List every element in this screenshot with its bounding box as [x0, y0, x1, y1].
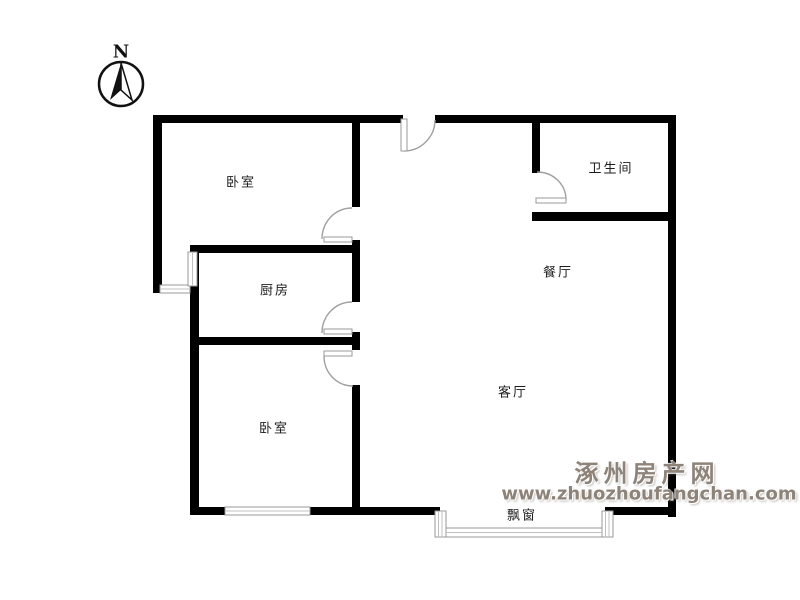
bedroom-bottom-door	[324, 351, 353, 386]
wall-central-4	[352, 385, 360, 515]
room-label-living: 客厅	[498, 382, 528, 401]
floorplan-canvas: N 卧室 卫生间 厨房 餐厅 客厅 卧室 飘窗 涿州房产网 www.zhuozh…	[0, 0, 800, 600]
room-label-dining: 餐厅	[543, 262, 573, 281]
entry-door	[401, 119, 435, 151]
wall-top-left	[153, 115, 403, 123]
wall-central-2	[352, 240, 360, 302]
room-label-kitchen: 厨房	[260, 280, 290, 299]
wall-central-1	[352, 115, 360, 207]
watermark-site-url: www.zhuozhoufangchan.com	[501, 484, 796, 505]
room-label-bedroom-top: 卧室	[226, 172, 256, 191]
wall-left-upper	[153, 115, 162, 293]
window-bedroom-bottom	[225, 507, 310, 515]
wall-bathroom-left	[532, 115, 540, 173]
wall-central-3	[352, 332, 360, 350]
wall-bottom-right	[605, 507, 676, 515]
wall-bathroom-bottom	[532, 212, 676, 221]
floorplan-drawing	[0, 0, 800, 600]
bathroom-door	[536, 172, 566, 203]
room-label-bedroom-bottom: 卧室	[259, 418, 289, 437]
north-arrow-icon	[99, 62, 143, 106]
kitchen-door	[322, 302, 352, 334]
room-label-bathroom: 卫生间	[588, 158, 633, 177]
north-label: N	[113, 42, 129, 63]
wall-kitchen-bottom	[190, 337, 360, 345]
wall-kitchen-top	[190, 245, 360, 253]
wall-top-right	[435, 115, 676, 123]
room-label-bay-window: 飘窗	[507, 505, 537, 524]
bedroom-top-door	[322, 208, 352, 242]
